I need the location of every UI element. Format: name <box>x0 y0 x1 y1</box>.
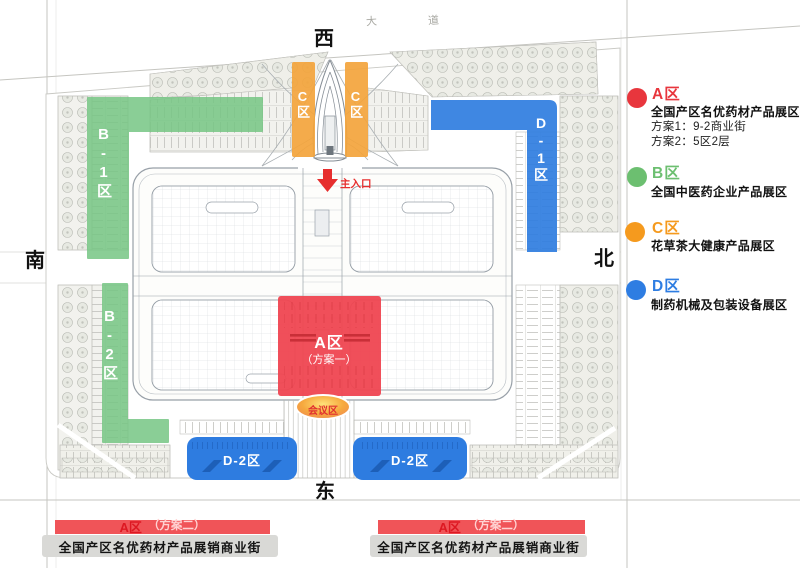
banner-right-red-bar: A区 （方案二） <box>378 520 585 534</box>
banner-left-zone: A区 <box>120 521 142 534</box>
compass-west: 西 <box>309 29 339 49</box>
legend-desc-b: 全国中医药企业产品展区 <box>651 186 787 198</box>
legend-dot-c-icon <box>625 222 645 242</box>
banner-left-plan: （方案二） <box>148 521 206 533</box>
legend-desc-d: 制药机械及包装设备展区 <box>651 299 787 311</box>
banner-left-red-bar: A区 （方案二） <box>55 520 270 534</box>
conference-zone-label: 会议区 <box>296 402 350 417</box>
legend-title-c: C区 <box>652 221 681 237</box>
legend-title-d: D区 <box>652 279 681 295</box>
zone-a-label: A区 <box>289 329 369 353</box>
legend-title-a: A区 <box>652 87 681 103</box>
legend-dot-b-icon <box>627 167 647 187</box>
road-name-char-1: 大 <box>365 13 377 30</box>
banner-right-desc: 全国产区名优药材产品展销商业街 <box>370 535 587 557</box>
compass-north: 北 <box>589 249 619 269</box>
zone-b2-label: B-2区 <box>102 308 117 382</box>
zone-b1-label: B-1区 <box>96 126 111 200</box>
legend-title-b: B区 <box>652 166 681 182</box>
legend-line2-a: 方案2：5区2层 <box>651 137 730 149</box>
road-name-char-2: 道 <box>427 12 439 29</box>
banner-right-plan: （方案二） <box>467 521 525 533</box>
zone-c-right-label: C区 <box>349 89 362 119</box>
main-entrance-label: 主入口 <box>340 176 372 191</box>
legend-line1-a: 方案1：9-2商业街 <box>651 122 746 134</box>
zone-c-left-label: C区 <box>296 89 309 119</box>
banner-right-zone: A区 <box>439 521 461 534</box>
compass-south: 南 <box>20 251 50 271</box>
legend-dot-a-icon <box>627 88 647 108</box>
banner-left-desc: 全国产区名优药材产品展销商业街 <box>42 535 278 557</box>
zone-d2-right-label: D-2区 <box>365 450 455 469</box>
legend-desc-a: 全国产区名优药材产品展区 <box>651 106 800 118</box>
site-plan-page: 西 南 北 东 大 道 B-1区 B-2区 C区 C区 D-1区 A区 （方案一… <box>0 0 800 568</box>
zone-d2-left-label: D-2区 <box>197 450 287 469</box>
zone-d1-label: D-1区 <box>534 115 548 183</box>
legend-dot-d-icon <box>626 280 646 300</box>
compass-east: 东 <box>310 482 340 502</box>
legend-desc-c: 花草茶大健康产品展区 <box>651 240 775 252</box>
zone-a-sublabel: （方案一） <box>279 351 379 367</box>
